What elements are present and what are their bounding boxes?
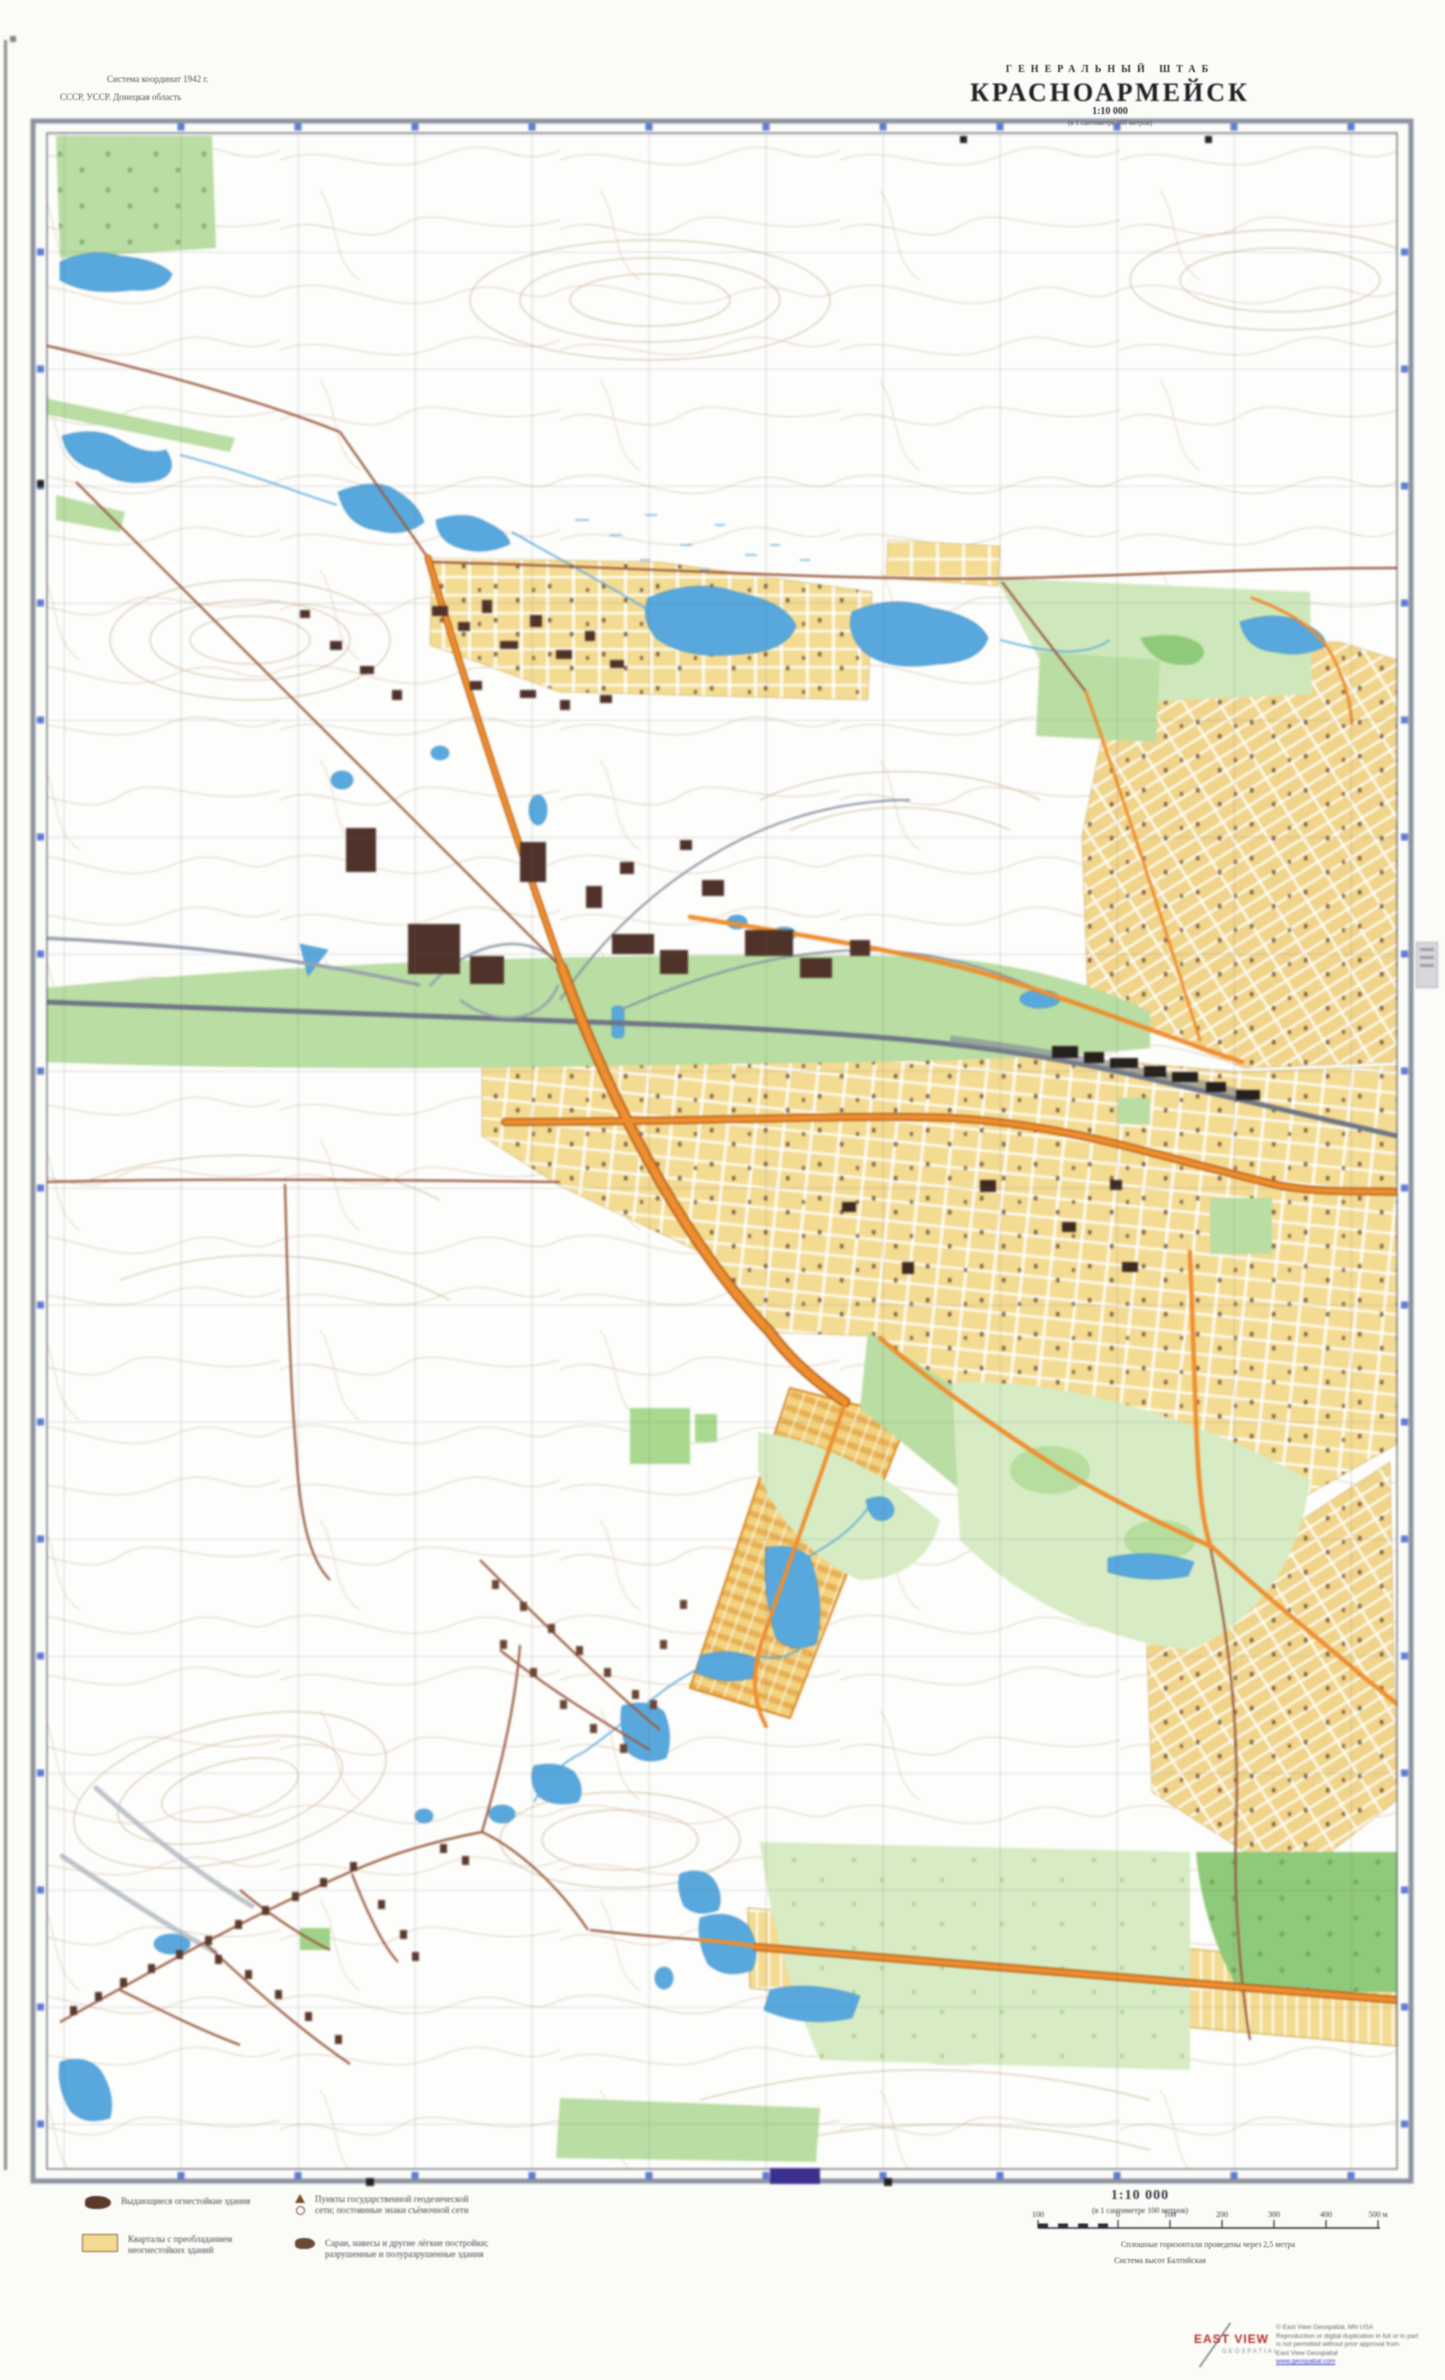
publisher-logo: EAST VIEW — [1194, 2332, 1269, 2346]
map-scale-subtitle: 1:10 000 — [1092, 106, 1128, 117]
publisher-copyright: © East View Geospatial, MN USA Reproduct… — [1276, 2324, 1418, 2367]
legend-label: Пункты государственной геодезической сет… — [315, 2194, 469, 2216]
scale-ratio: 1:10 000 — [1040, 2188, 1240, 2204]
publisher-logo-sub: GEOSPATIAL — [1222, 2349, 1279, 2355]
map-scale-subnote: (в 1 сантиметре 100 метров) — [1068, 119, 1152, 127]
svg-text:100: 100 — [1164, 2210, 1176, 2219]
legend-label: Выдающиеся огнестойкие здания — [121, 2196, 250, 2207]
svg-text:100: 100 — [1032, 2210, 1044, 2219]
svg-text:300: 300 — [1268, 2210, 1280, 2219]
quarter-fill-icon — [82, 2234, 118, 2252]
svg-text:0: 0 — [1116, 2210, 1120, 2219]
scanned-map-page: { "header": { "note_line1": "Система коо… — [0, 0, 1445, 2380]
coordinate-grid — [47, 133, 1397, 2169]
svg-text:500 м: 500 м — [1368, 2210, 1387, 2219]
agency-title: ГЕНЕРАЛЬНЫЙ ШТАБ — [1006, 64, 1214, 75]
geodetic-point-icon — [295, 2194, 305, 2215]
publisher-block: EAST VIEW GEOSPATIAL © East View Geospat… — [1160, 2320, 1440, 2378]
legend-label: Кварталы с преобладанием неогнестойких з… — [128, 2234, 232, 2256]
map-canvas — [0, 0, 1445, 2380]
contour-interval-note: Сплошные горизонтали проведены через 2,5… — [1121, 2240, 1295, 2249]
purple-accession-stamp — [770, 2168, 820, 2184]
publisher-link: www.geospatial.com — [1276, 2358, 1418, 2367]
scale-bar: 100 0 100 200 300 400 500 м — [1030, 2208, 1390, 2238]
svg-text:400: 400 — [1320, 2210, 1332, 2219]
legend-item-light-structures: Сараи, навесы и другие лёгкие постройки;… — [295, 2238, 488, 2260]
legend-item-quarters: Кварталы с преобладанием неогнестойких з… — [82, 2234, 232, 2256]
coordinate-system-note: Система координат 1942 г. — [107, 74, 208, 84]
country-region-note: СССР, УССР. Донецкая область — [60, 92, 181, 102]
height-system-note: Система высот Балтийская — [1114, 2256, 1206, 2265]
scan-edge-artifacts — [4, 36, 16, 2170]
light-structure-icon — [295, 2238, 315, 2249]
legend-item-geodetic: Пункты государственной геодезической сет… — [295, 2194, 469, 2216]
svg-text:200: 200 — [1216, 2210, 1228, 2219]
fireproof-building-icon — [85, 2196, 111, 2209]
margin-stamp — [1416, 942, 1438, 988]
legend-item-fireproof: Выдающиеся огнестойкие здания — [85, 2196, 250, 2209]
legend-label: Сараи, навесы и другие лёгкие постройки;… — [325, 2238, 488, 2260]
map-title: КРАСНОАРМЕЙСК — [970, 78, 1250, 108]
